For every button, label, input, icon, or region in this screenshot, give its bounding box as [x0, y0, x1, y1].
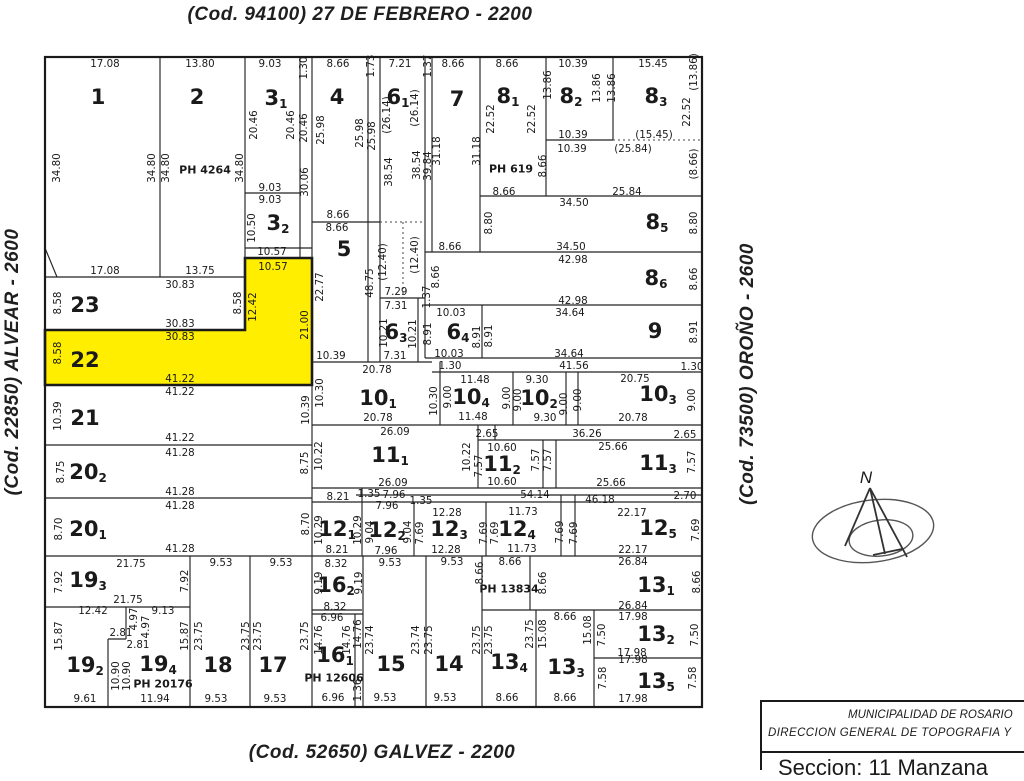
parcel-number-192: 192: [66, 653, 104, 678]
dimension-label: 41.28: [165, 500, 194, 512]
dimension-label: 2.81: [127, 639, 150, 651]
title-block-dept: DIRECCION GENERAL DE TOPOGRAFIA Y: [768, 725, 1024, 743]
dimension-label: 9.53: [434, 692, 457, 704]
dimension-label: 7.69: [568, 522, 580, 545]
dimension-label: 15.08: [537, 619, 549, 648]
dimension-label: 8.66: [326, 222, 349, 234]
parcel-number-131: 131: [637, 573, 675, 598]
parcel-number-17: 17: [258, 653, 287, 677]
dimension-label: 11.48: [458, 411, 487, 423]
dimension-label: 9.53: [205, 693, 228, 705]
dimension-label: 7.29: [385, 286, 408, 298]
parcel-number-7: 7: [450, 87, 465, 111]
dimension-label: 8.66: [439, 241, 462, 253]
dimension-label: 9.30: [526, 374, 549, 386]
dimension-label: 7.69: [414, 522, 426, 545]
parcel-number-104: 104: [452, 385, 490, 410]
dimension-label: 8.66: [537, 155, 549, 178]
dimension-label: 8.21: [326, 544, 349, 556]
dimension-label: 36.26: [572, 428, 601, 440]
dimension-label: 10.21: [407, 319, 419, 348]
dimension-label: 6.96: [321, 612, 344, 624]
dimension-label: 11.94: [140, 693, 169, 705]
parcel-number-83: 83: [645, 84, 668, 109]
dimension-label: 9.53: [264, 693, 287, 705]
dimension-label: 8.66: [496, 692, 519, 704]
dimension-label: 8.58: [232, 292, 244, 315]
dimension-label: 8.80: [688, 212, 700, 235]
dimension-label: 8.70: [300, 513, 312, 536]
parcel-number-15: 15: [376, 652, 405, 676]
dimension-label: 20.46: [298, 113, 310, 142]
dimension-label: 8.58: [52, 292, 64, 315]
dimension-label: 23.74: [364, 625, 376, 654]
dimension-label: 10.90: [121, 661, 133, 690]
parcel-number-64: 64: [447, 320, 470, 345]
dimension-label: 23.75: [423, 625, 435, 654]
parcel-number-201: 201: [69, 517, 107, 542]
dimension-label: 7.57: [530, 449, 542, 472]
dimension-label: 4.97: [140, 616, 152, 639]
dimension-label: 22.52: [485, 104, 497, 133]
dimension-label: 25.98: [315, 115, 327, 144]
parcel-number-22: 22: [70, 348, 99, 372]
dimension-label: 7.69: [554, 521, 566, 544]
parcel-number-61: 61: [387, 85, 410, 110]
dimension-label: 7.57: [686, 451, 698, 474]
title-block-org: MUNICIPALIDAD DE ROSARIO: [848, 707, 1024, 725]
dimension-label: 8.80: [483, 212, 495, 235]
parcel-number-125: 125: [639, 516, 677, 541]
dimension-label: 8.66: [554, 611, 577, 623]
title-block: MUNICIPALIDAD DE ROSARIO DIRECCION GENER…: [760, 700, 1024, 770]
dimension-label: 23.75: [240, 621, 252, 650]
dimension-label: 8.66: [496, 58, 519, 70]
dimension-label: (25.84): [614, 143, 652, 155]
dimension-label: 1.30: [298, 57, 310, 80]
dimension-label: 14.76: [352, 619, 364, 648]
dimension-label: (8.66): [688, 149, 700, 180]
parcel-number-194: 194: [139, 652, 177, 677]
parcel-number-123: 123: [430, 517, 468, 542]
dimension-label: 34.80: [51, 153, 63, 182]
dimension-label: 8.91: [688, 321, 700, 344]
parcel-number-1: 1: [91, 85, 106, 109]
cadastral-plan-page: (Cod. 94100) 27 DE FEBRERO - 2200 (Cod. …: [0, 0, 1024, 768]
dimension-label: 38.54: [383, 157, 395, 186]
dimension-label: 41.28: [165, 447, 194, 459]
dimension-label: 8.91: [422, 323, 434, 346]
dimension-label: 8.66: [688, 268, 700, 291]
dimension-label: 8.66: [442, 58, 465, 70]
dimension-label: 34.64: [554, 348, 583, 360]
parcel-number-5: 5: [337, 237, 352, 261]
dimension-label: 23.75: [299, 621, 311, 650]
parcel-number-82: 82: [560, 84, 583, 109]
dimension-label: 8.75: [55, 461, 67, 484]
dimension-label: 30.83: [165, 331, 194, 343]
dimension-label: 41.22: [165, 432, 194, 444]
dimension-label: 20.78: [363, 412, 392, 424]
dimension-label: 41.28: [165, 543, 194, 555]
dimension-label: 13.80: [185, 58, 214, 70]
dimension-label: 8.66: [493, 186, 516, 198]
dimension-label: 2.65: [674, 429, 697, 441]
dimension-label: 1.37: [421, 286, 433, 309]
dimension-label: 20.78: [618, 412, 647, 424]
dimension-label: 12.42: [78, 605, 107, 617]
parcel-number-21: 21: [70, 406, 99, 430]
dimension-label: 10.39: [558, 129, 587, 141]
dimension-label: 9.00: [558, 393, 570, 416]
dimension-label: 9.53: [441, 556, 464, 568]
ph-label: PH 619: [489, 163, 533, 176]
dimension-label: 12.42: [247, 292, 259, 321]
parcel-number-23: 23: [70, 293, 99, 317]
dimension-label: 13.86: [542, 70, 554, 99]
dimension-label: 8.66: [327, 209, 350, 221]
parcel-number-112: 112: [483, 452, 521, 477]
dimension-label: 9.03: [259, 58, 282, 70]
dimension-label: 8.32: [325, 558, 348, 570]
dimension-label: 7.31: [384, 350, 407, 362]
dimension-label: 20.46: [248, 110, 260, 139]
parcel-number-103: 103: [639, 382, 677, 407]
dimension-label: 17.08: [90, 58, 119, 70]
dimension-label: 8.70: [53, 518, 65, 541]
dimension-label: 23.75: [252, 621, 264, 650]
dimension-label: 15.45: [638, 58, 667, 70]
parcel-boundary: [45, 248, 57, 277]
parcel-number-86: 86: [645, 266, 668, 291]
dimension-label: (12.40): [409, 236, 421, 274]
dimension-label: 25.66: [596, 477, 625, 489]
parcel-number-85: 85: [646, 210, 669, 235]
dimension-label: (26.14): [409, 89, 421, 127]
dimension-label: 1.30: [439, 360, 462, 372]
dimension-label: 31.18: [471, 136, 483, 165]
parcel-number-193: 193: [69, 568, 107, 593]
dimension-label: 31.18: [431, 136, 443, 165]
dimension-label: 8.66: [691, 571, 703, 594]
dimension-label: 17.98: [618, 654, 647, 666]
dimension-label: 9.53: [270, 557, 293, 569]
title-block-section: Seccion: 11 Manzana: [762, 753, 1024, 781]
dimension-label: 8.58: [52, 342, 64, 365]
dimension-label: 9.13: [152, 605, 175, 617]
dimension-label: (15.45): [635, 129, 673, 141]
dimension-label: 10.39: [300, 395, 312, 424]
dimension-label: 9.30: [534, 412, 557, 424]
dimension-label: 10.60: [487, 476, 516, 488]
parcel-number-133: 133: [547, 655, 585, 680]
dimension-label: 10.39: [52, 401, 64, 430]
parcel-number-31: 31: [265, 86, 288, 111]
dimension-label: 46.18: [585, 494, 614, 506]
dimension-label: 20.46: [285, 110, 297, 139]
parcel-number-9: 9: [648, 319, 663, 343]
dimension-label: (13.86): [688, 53, 700, 91]
dimension-label: 15.08: [582, 615, 594, 644]
dimension-label: 12.28: [431, 544, 460, 556]
dimension-label: 30.83: [165, 279, 194, 291]
dimension-label: 13.86: [606, 73, 618, 102]
dimension-label: 1.35: [358, 488, 381, 500]
title-block-header: MUNICIPALIDAD DE ROSARIO DIRECCION GENER…: [762, 702, 1024, 753]
dimension-label: 22.52: [681, 97, 693, 126]
parcel-map: 17.0813.809.031.308.661.737.211.378.668.…: [0, 0, 1024, 768]
dimension-label: 23.75: [524, 619, 536, 648]
dimension-label: 8.91: [471, 326, 483, 349]
dimension-label: 23.74: [410, 625, 422, 654]
dimension-label: 15.87: [179, 621, 191, 650]
dimension-label: 23.75: [471, 625, 483, 654]
dimension-label: 34.64: [555, 307, 584, 319]
dimension-label: 17.08: [90, 265, 119, 277]
dimension-label: 7.21: [389, 58, 412, 70]
dimension-label: 25.98: [366, 121, 378, 150]
dimension-label: 10.57: [257, 246, 286, 258]
parcel-number-63: 63: [385, 320, 408, 345]
dimension-label: 41.22: [165, 386, 194, 398]
dimension-label: 22.52: [526, 104, 538, 133]
dimension-label: 34.50: [559, 197, 588, 209]
dimension-label: 9.00: [686, 389, 698, 412]
dimension-label: 9.61: [74, 693, 97, 705]
parcel-number-32: 32: [267, 211, 290, 236]
dimension-label: 10.30: [428, 386, 440, 415]
dimension-label: 10.39: [557, 143, 586, 155]
dimension-label: 9.03: [259, 182, 282, 194]
dimension-label: 30.06: [299, 167, 311, 196]
dimension-label: 8.66: [499, 556, 522, 568]
dimension-label: 2.81: [110, 627, 133, 639]
dimension-label: 8.66: [474, 562, 486, 585]
parcel-number-4: 4: [330, 85, 345, 109]
parcel-number-135: 135: [637, 669, 675, 694]
dimension-label: 13.86: [591, 73, 603, 102]
parcel-number-124: 124: [498, 517, 536, 542]
dimension-label: 10.39: [558, 58, 587, 70]
dimension-label: 8.21: [327, 491, 350, 503]
parcel-number-14: 14: [434, 652, 463, 676]
parcel-number-81: 81: [497, 84, 520, 109]
dimension-label: 1.35: [410, 495, 433, 507]
parcel-number-101: 101: [359, 386, 397, 411]
dimension-label: 7.96: [376, 500, 399, 512]
dimension-label: 25.84: [612, 186, 641, 198]
dimension-label: (12.40): [377, 243, 389, 281]
parcel-number-162: 162: [317, 573, 355, 598]
dimension-label: 1.73: [365, 55, 377, 78]
ph-label: PH 20176: [133, 678, 193, 691]
dimension-label: 34.80: [160, 153, 172, 182]
dimension-label: 10.22: [461, 442, 473, 471]
dimension-label: 42.98: [558, 295, 587, 307]
dimension-label: 9.19: [353, 572, 365, 595]
dimension-label: 48.75: [364, 268, 376, 297]
dimension-label: 7.50: [596, 624, 608, 647]
parcel-number-111: 111: [371, 443, 409, 468]
parcel-number-2: 2: [190, 85, 205, 109]
dimension-label: 26.09: [380, 426, 409, 438]
dimension-label: 7.92: [53, 571, 65, 594]
dimension-label: 10.39: [316, 350, 345, 362]
dimension-label: 34.80: [234, 153, 246, 182]
dimension-label: 34.50: [556, 241, 585, 253]
dimension-label: 10.30: [314, 378, 326, 407]
parcel-number-18: 18: [203, 653, 232, 677]
dimension-label: 25.66: [598, 441, 627, 453]
parcel-number-134: 134: [490, 650, 528, 675]
dimension-label: 22.17: [618, 544, 647, 556]
dimension-label: 8.66: [430, 266, 442, 289]
parcel-number-122: 122: [368, 518, 406, 543]
dimension-label: 13.75: [185, 265, 214, 277]
dimension-label: 6.96: [322, 692, 345, 704]
ph-label: PH 4264: [179, 164, 231, 177]
dimension-label: 41.28: [165, 486, 194, 498]
parcel-number-113: 113: [639, 451, 677, 476]
dimension-label: 8.66: [554, 692, 577, 704]
dimension-label: 21.75: [113, 594, 142, 606]
dimension-label: 21.75: [116, 558, 145, 570]
dimension-label: 9.00: [572, 389, 584, 412]
dimension-label: 34.80: [146, 153, 158, 182]
dimension-label: 9.03: [259, 194, 282, 206]
dimension-label: 9.53: [374, 692, 397, 704]
dimension-label: 10.22: [313, 441, 325, 470]
dimension-label: 1.37: [422, 55, 434, 78]
dimension-label: 7.31: [385, 300, 408, 312]
dimension-label: 21.00: [299, 310, 311, 339]
dimension-label: 41.56: [559, 360, 588, 372]
dimension-label: 7.58: [597, 667, 609, 690]
dimension-label: 8.66: [537, 572, 549, 595]
parcel-number-202: 202: [69, 460, 107, 485]
dimension-label: 17.98: [618, 693, 647, 705]
parcel-number-121: 121: [318, 517, 356, 542]
dimension-label: 11.73: [507, 543, 536, 555]
parcel-number-102: 102: [520, 386, 558, 411]
dimension-label: 2.65: [476, 428, 499, 440]
dimension-label: 10.03: [436, 307, 465, 319]
dimension-label: 42.98: [558, 254, 587, 266]
dimension-label: 23.75: [193, 621, 205, 650]
dimension-label: 7.58: [687, 667, 699, 690]
dimension-label: 15.87: [53, 621, 65, 650]
dimension-label: 1.30: [681, 361, 704, 373]
dimension-label: 41.22: [165, 373, 194, 385]
dimension-label: 7.96: [375, 545, 398, 557]
dimension-label: 30.83: [165, 318, 194, 330]
dimension-label: 25.98: [354, 118, 366, 147]
dimension-label: 10.50: [246, 213, 258, 242]
ph-label: PH 13834: [479, 583, 539, 596]
dimension-label: 26.09: [378, 477, 407, 489]
dimension-label: 7.50: [689, 624, 701, 647]
dimension-label: 8.75: [299, 452, 311, 475]
dimension-label: 7.92: [179, 570, 191, 593]
parcel-number-132: 132: [637, 622, 675, 647]
dimension-label: 2.70: [674, 490, 697, 502]
dimension-label: 8.66: [327, 58, 350, 70]
dimension-label: 20.78: [362, 364, 391, 376]
dimension-label: 54.14: [520, 489, 549, 501]
dimension-label: 26.84: [618, 556, 647, 568]
dimension-label: 8.91: [483, 325, 495, 348]
dimension-label: 7.69: [690, 519, 702, 542]
dimension-label: 9.53: [379, 557, 402, 569]
dimension-label: 7.57: [542, 449, 554, 472]
dimension-label: 10.03: [434, 348, 463, 360]
ph-label: PH 12606: [304, 672, 364, 685]
dimension-label: 9.53: [210, 557, 233, 569]
dimension-label: 22.77: [314, 272, 326, 301]
dimension-label: 10.57: [258, 261, 287, 273]
